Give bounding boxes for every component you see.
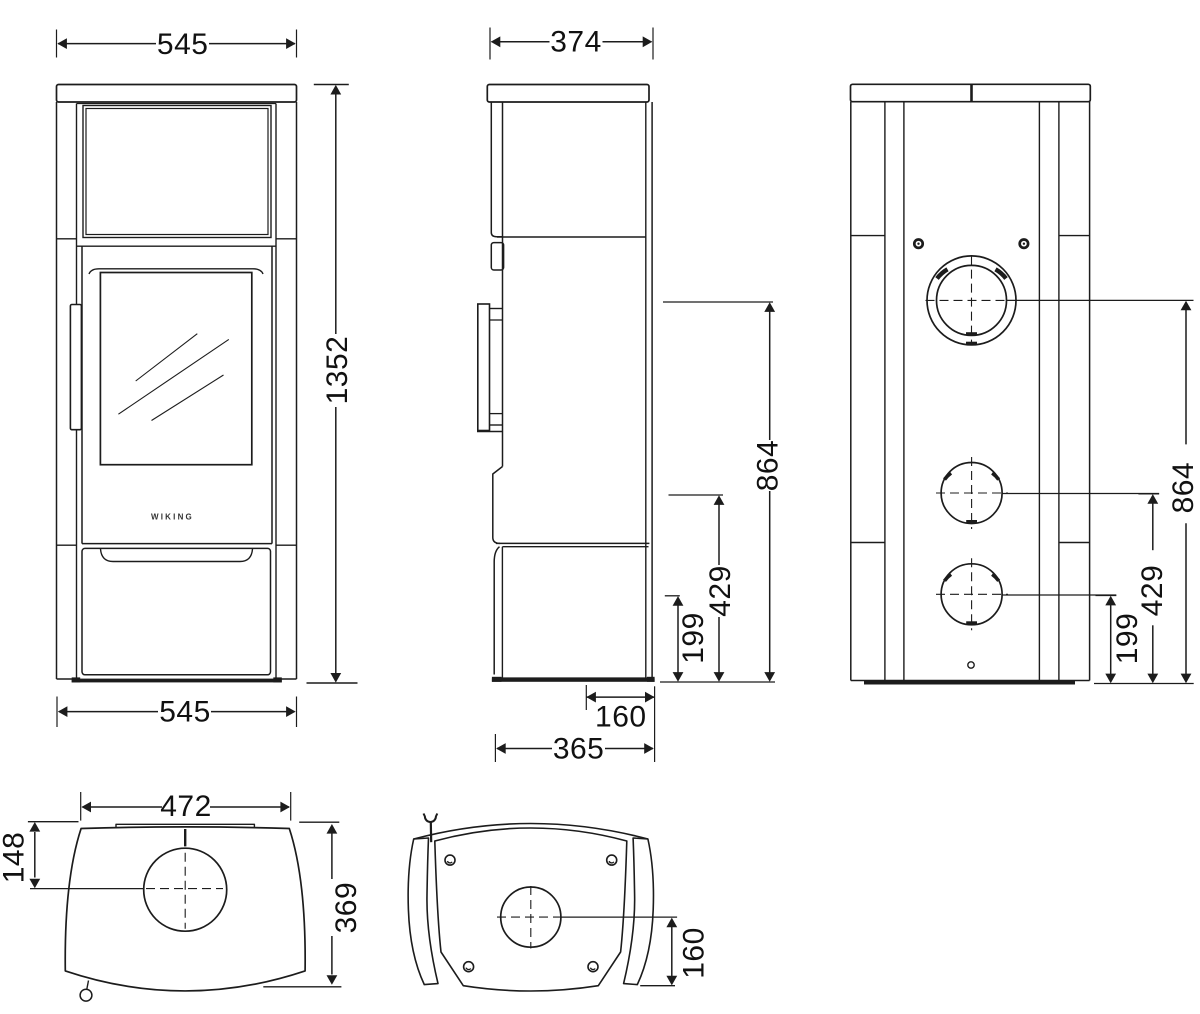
svg-text:148: 148 <box>0 832 31 884</box>
svg-text:545: 545 <box>159 696 211 729</box>
svg-text:160: 160 <box>595 701 647 734</box>
svg-text:369: 369 <box>330 882 363 934</box>
svg-text:374: 374 <box>550 26 602 59</box>
svg-text:199: 199 <box>677 612 710 664</box>
svg-text:365: 365 <box>553 733 605 766</box>
svg-text:472: 472 <box>160 790 212 823</box>
svg-text:545: 545 <box>157 28 209 61</box>
svg-text:864: 864 <box>1167 462 1200 514</box>
svg-text:429: 429 <box>704 565 737 617</box>
svg-text:160: 160 <box>678 927 711 979</box>
svg-text:864: 864 <box>752 440 785 492</box>
svg-text:199: 199 <box>1111 613 1144 665</box>
svg-text:1352: 1352 <box>321 336 354 405</box>
svg-text:429: 429 <box>1136 565 1169 617</box>
svg-text:WIKING: WIKING <box>151 513 194 522</box>
